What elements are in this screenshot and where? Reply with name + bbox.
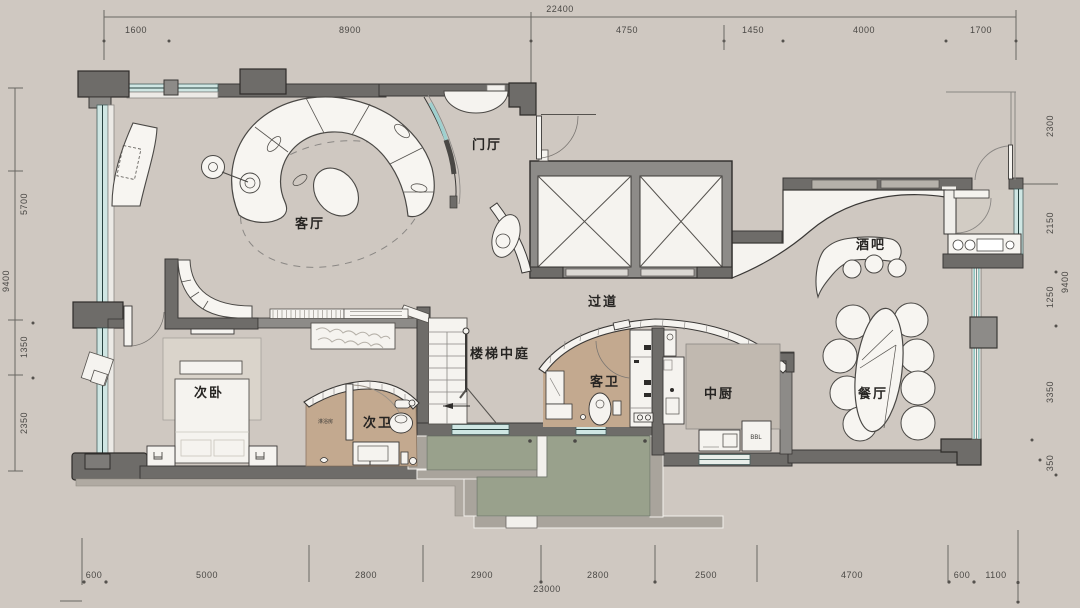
svg-text:5000: 5000 [196,570,218,580]
svg-text:次卫: 次卫 [363,415,393,430]
svg-text:8900: 8900 [339,25,361,35]
svg-text:3350: 3350 [1045,381,1055,403]
svg-text:2500: 2500 [695,570,717,580]
svg-text:4000: 4000 [853,25,875,35]
svg-text:4700: 4700 [841,570,863,580]
svg-text:1700: 1700 [970,25,992,35]
svg-text:4750: 4750 [616,25,638,35]
svg-text:1450: 1450 [742,25,764,35]
svg-text:1250: 1250 [1045,286,1055,308]
svg-text:350: 350 [1045,455,1055,472]
svg-text:BBL: BBL [750,435,762,441]
svg-text:中厨: 中厨 [704,386,734,401]
svg-text:600: 600 [954,570,971,580]
svg-text:600: 600 [86,570,103,580]
svg-text:酒吧: 酒吧 [856,237,886,252]
svg-text:1100: 1100 [985,570,1006,580]
svg-text:9400: 9400 [1,270,11,292]
svg-text:2800: 2800 [355,570,377,580]
svg-text:5700: 5700 [19,193,29,215]
svg-text:楼梯中庭: 楼梯中庭 [470,346,530,361]
svg-text:淋浴房: 淋浴房 [318,418,333,425]
svg-text:过道: 过道 [588,294,618,309]
svg-text:门厅: 门厅 [472,137,502,152]
svg-text:2900: 2900 [471,570,493,580]
svg-text:客厅: 客厅 [295,216,325,231]
svg-text:2350: 2350 [19,412,29,434]
svg-text:1600: 1600 [125,25,147,35]
svg-text:客卫: 客卫 [590,374,620,389]
svg-text:23000: 23000 [533,584,561,594]
svg-text:2300: 2300 [1045,115,1055,137]
svg-text:次卧: 次卧 [194,385,224,400]
svg-text:餐厅: 餐厅 [857,386,888,401]
svg-text:2800: 2800 [587,570,609,580]
svg-text:2150: 2150 [1045,212,1055,234]
svg-text:9400: 9400 [1060,271,1070,293]
svg-text:1350: 1350 [19,336,29,358]
svg-text:22400: 22400 [546,4,574,14]
